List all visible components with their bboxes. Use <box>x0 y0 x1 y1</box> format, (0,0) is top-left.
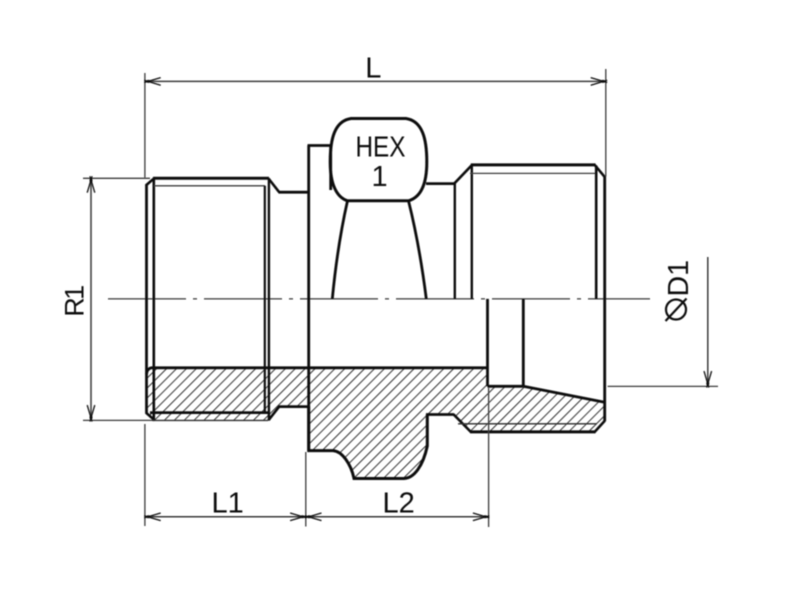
svg-text:L2: L2 <box>383 488 415 520</box>
svg-text:1: 1 <box>372 161 388 193</box>
svg-text:D1: D1 <box>663 260 695 296</box>
svg-text:R1: R1 <box>59 285 89 317</box>
svg-text:L1: L1 <box>212 487 244 519</box>
svg-text:HEX: HEX <box>356 132 406 164</box>
svg-text:L: L <box>365 52 381 84</box>
